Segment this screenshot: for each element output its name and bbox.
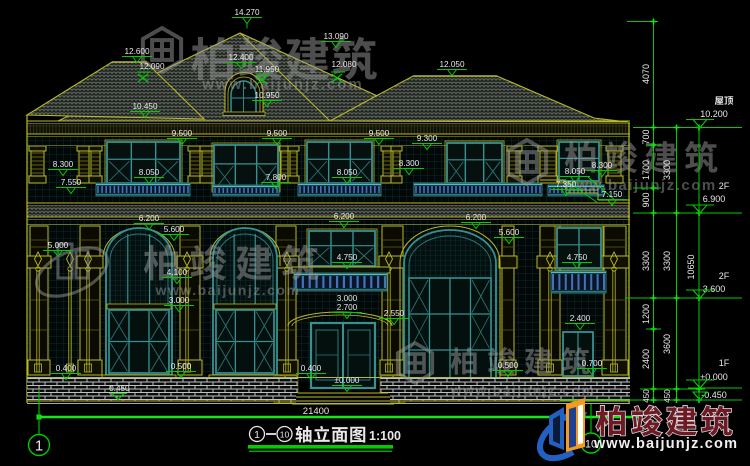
- svg-text:9.500: 9.500: [267, 129, 288, 138]
- svg-text:1700: 1700: [641, 160, 651, 180]
- svg-text:1: 1: [35, 438, 43, 455]
- svg-text:10.950: 10.950: [254, 91, 279, 100]
- svg-text:2.400: 2.400: [570, 314, 591, 323]
- svg-text:450: 450: [642, 389, 651, 403]
- svg-text:8.300: 8.300: [592, 161, 613, 170]
- svg-text:www.baijunjz.com: www.baijunjz.com: [450, 382, 596, 398]
- svg-text:2400: 2400: [641, 349, 651, 369]
- svg-text:5.600: 5.600: [499, 228, 520, 237]
- svg-text:www.baijunjz.com: www.baijunjz.com: [593, 436, 738, 452]
- svg-text:10.450: 10.450: [132, 102, 157, 111]
- svg-text:1: 1: [254, 429, 260, 441]
- svg-text:8.300: 8.300: [399, 159, 420, 168]
- svg-text:www.baijunjz.com: www.baijunjz.com: [562, 177, 716, 194]
- svg-text:4.750: 4.750: [337, 253, 358, 262]
- svg-text:2.700: 2.700: [337, 303, 358, 312]
- svg-text:10: 10: [280, 430, 290, 440]
- svg-text:7.800: 7.800: [266, 173, 287, 182]
- svg-text:4.100: 4.100: [167, 268, 188, 277]
- svg-text:2F: 2F: [719, 181, 730, 191]
- svg-text:9.300: 9.300: [417, 134, 438, 143]
- svg-text:11.950: 11.950: [255, 65, 280, 74]
- svg-text:3.000: 3.000: [337, 294, 358, 303]
- svg-text:6.200: 6.200: [139, 214, 160, 223]
- svg-text:2F: 2F: [719, 271, 730, 281]
- svg-text:0.400: 0.400: [301, 364, 322, 373]
- svg-text:-0.450: -0.450: [106, 384, 130, 393]
- svg-text:3300: 3300: [662, 160, 672, 180]
- svg-text:7.550: 7.550: [61, 178, 82, 187]
- svg-text:10650: 10650: [686, 254, 696, 279]
- svg-text:6.200: 6.200: [466, 213, 487, 222]
- svg-text:7.150: 7.150: [602, 190, 623, 199]
- svg-text:3.600: 3.600: [703, 284, 726, 294]
- svg-text:10.200: 10.200: [700, 109, 728, 119]
- svg-text:450: 450: [663, 389, 672, 403]
- svg-text:4070: 4070: [641, 64, 651, 84]
- svg-text:13.090: 13.090: [323, 32, 348, 41]
- svg-text:12.080: 12.080: [331, 60, 356, 69]
- svg-text:21400: 21400: [303, 406, 329, 417]
- svg-text:8.050: 8.050: [139, 168, 160, 177]
- svg-text:±0.000: ±0.000: [335, 376, 360, 385]
- svg-text:12.400: 12.400: [228, 53, 253, 62]
- svg-text:3300: 3300: [641, 251, 651, 271]
- svg-text:8.300: 8.300: [53, 160, 74, 169]
- svg-text:0.500: 0.500: [171, 362, 192, 371]
- svg-text:700: 700: [641, 129, 651, 144]
- svg-text:4.750: 4.750: [567, 253, 588, 262]
- svg-text:0.500: 0.500: [498, 361, 519, 370]
- svg-text:12.050: 12.050: [439, 60, 464, 69]
- svg-text:12.600: 12.600: [124, 47, 149, 56]
- svg-text:www.baijunjz.com: www.baijunjz.com: [201, 76, 363, 93]
- svg-text:1200: 1200: [641, 304, 651, 324]
- svg-text:14.270: 14.270: [234, 8, 259, 17]
- svg-text:3600: 3600: [662, 334, 672, 354]
- svg-text:3300: 3300: [662, 251, 672, 271]
- svg-text:5.600: 5.600: [164, 225, 185, 234]
- svg-text:9.500: 9.500: [369, 129, 390, 138]
- svg-text:8.050: 8.050: [337, 168, 358, 177]
- svg-text:1:100: 1:100: [369, 429, 401, 443]
- svg-text:6.900: 6.900: [703, 194, 726, 204]
- svg-text:8.050: 8.050: [565, 167, 586, 176]
- svg-text:5.000: 5.000: [48, 241, 69, 250]
- svg-text:9.500: 9.500: [172, 129, 193, 138]
- svg-text:900: 900: [641, 192, 651, 207]
- svg-text:3.000: 3.000: [169, 296, 190, 305]
- svg-text:0.400: 0.400: [56, 364, 77, 373]
- svg-text:12.090: 12.090: [139, 62, 164, 71]
- svg-text:2.550: 2.550: [384, 309, 405, 318]
- svg-text:6.200: 6.200: [334, 212, 355, 221]
- svg-text:7.350: 7.350: [556, 180, 577, 189]
- svg-text:1F: 1F: [719, 358, 730, 368]
- svg-text:0.700: 0.700: [582, 359, 603, 368]
